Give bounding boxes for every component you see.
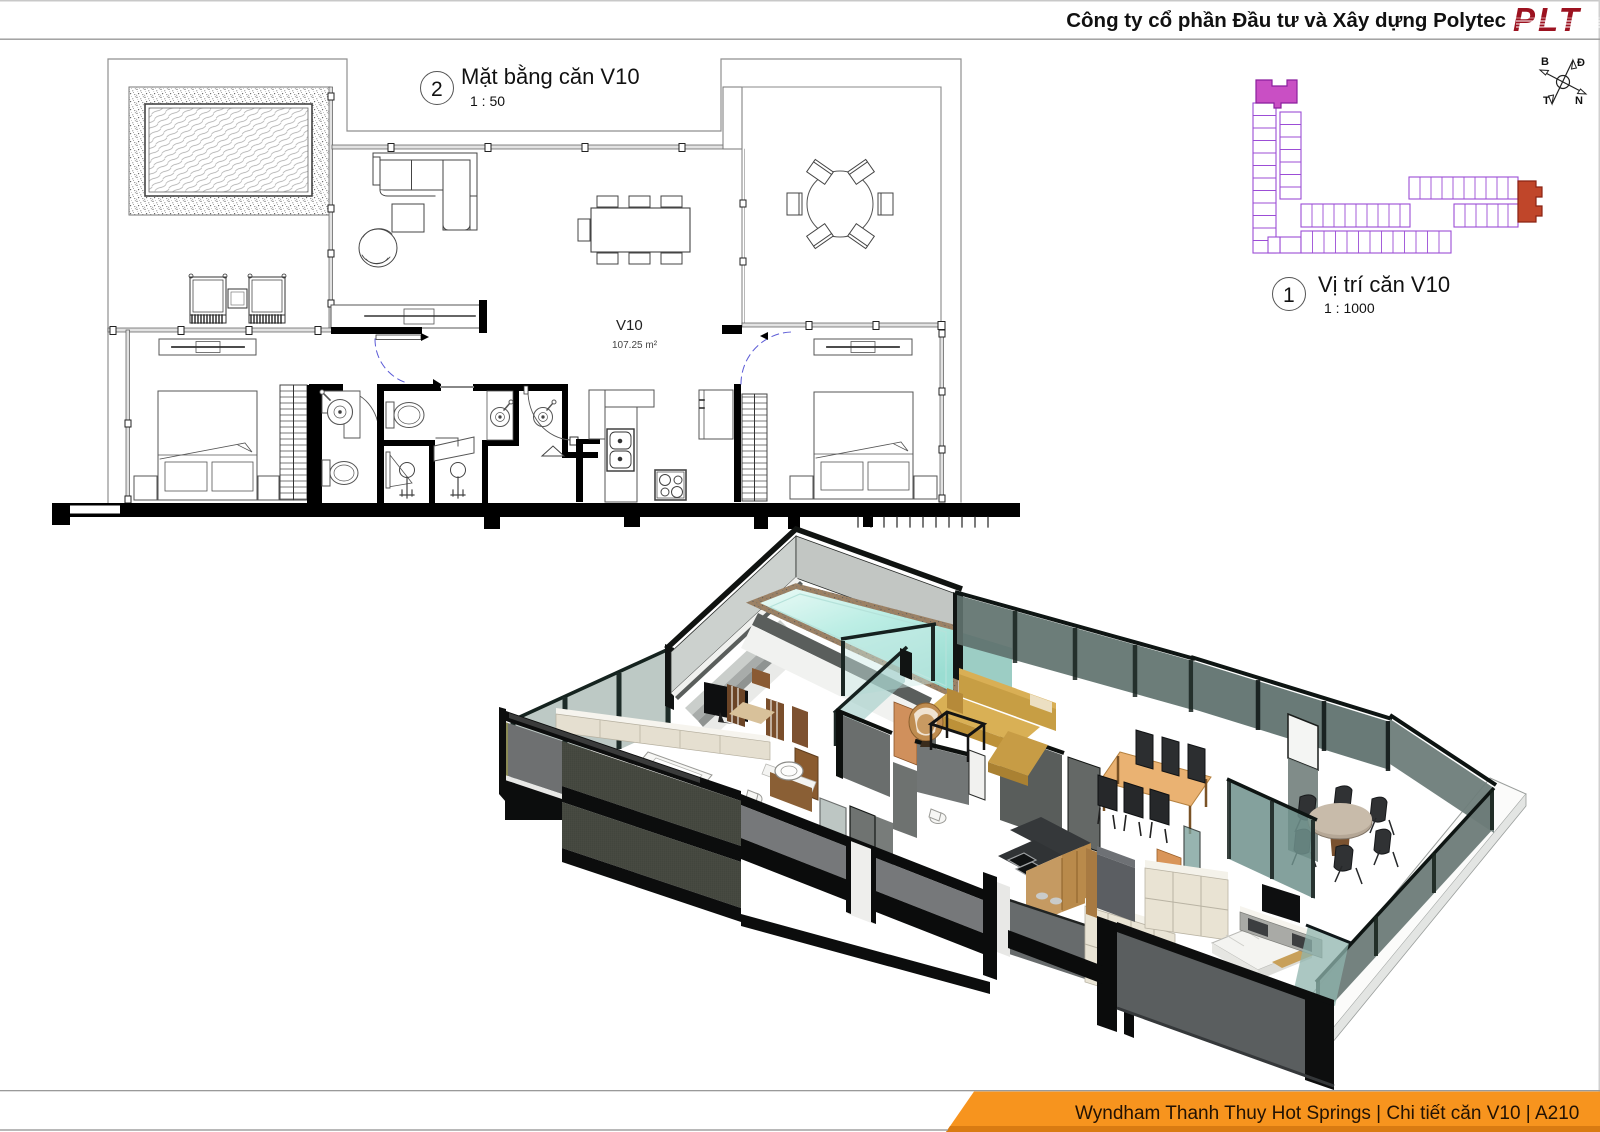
svg-text:N: N xyxy=(1575,95,1583,107)
svg-text:1 : 50: 1 : 50 xyxy=(470,93,505,109)
svg-text:1 : 1000: 1 : 1000 xyxy=(1324,300,1375,316)
svg-text:V10: V10 xyxy=(616,317,643,334)
svg-text:2: 2 xyxy=(431,78,443,101)
svg-text:Mặt bằng căn V10: Mặt bằng căn V10 xyxy=(461,64,640,89)
svg-text:Công ty cổ phần Đầu tư và Xây: Công ty cổ phần Đầu tư và Xây dựng Polyt… xyxy=(1066,9,1506,32)
svg-text:T: T xyxy=(1543,95,1550,107)
svg-text:1: 1 xyxy=(1283,284,1295,307)
svg-text:Đ: Đ xyxy=(1577,57,1585,69)
svg-text:107.25 m²: 107.25 m² xyxy=(612,340,658,351)
svg-text:Vị trí căn V10: Vị trí căn V10 xyxy=(1318,272,1450,297)
svg-text:Wyndham Thanh Thuy Hot Springs: Wyndham Thanh Thuy Hot Springs | Chi tiế… xyxy=(1075,1103,1579,1124)
svg-text:B: B xyxy=(1541,56,1549,68)
svg-text:PLT: PLT xyxy=(1513,1,1582,38)
